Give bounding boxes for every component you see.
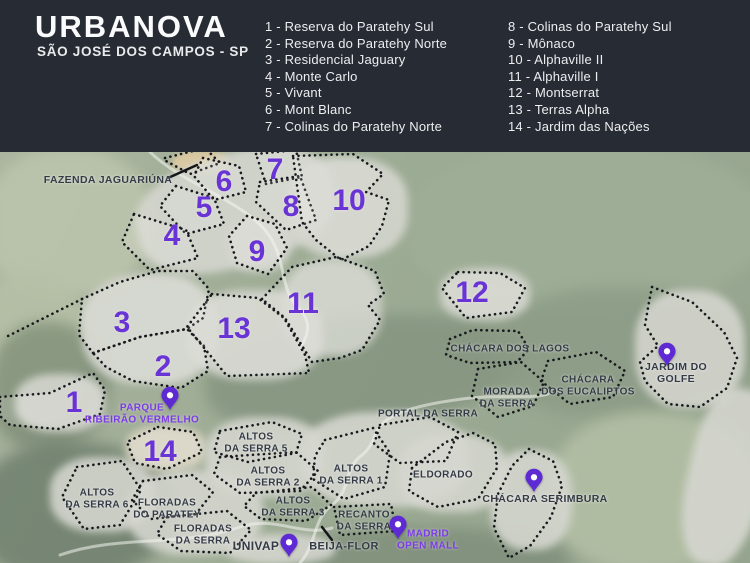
map-pin-icon [658, 343, 675, 366]
header: URBANOVA SÃO JOSÉ DOS CAMPOS - SP 1 - Re… [0, 0, 750, 152]
label-chacara-dos-eucaliptos: CHÁCARA DOS EUCALIPTOS [541, 375, 635, 398]
area-number-1: 1 [66, 386, 83, 420]
pin-chacara-serimbura [524, 468, 544, 497]
area-number-8: 8 [283, 190, 300, 224]
area-number-13: 13 [217, 312, 250, 346]
area-number-10: 10 [332, 184, 365, 218]
label-altos-da-serra-1: ALTOS DA SERRA 1 [319, 464, 382, 487]
page-subtitle: SÃO JOSÉ DOS CAMPOS - SP [37, 44, 249, 59]
legend-item: 4 - Monte Carlo [265, 69, 447, 86]
label-fazenda-jaguariuna: FAZENDA JAGUARIÚNA [44, 174, 172, 186]
area-number-11: 11 [287, 287, 319, 321]
area-number-14: 14 [143, 435, 176, 469]
area-number-12: 12 [455, 276, 488, 310]
legend-column-1: 1 - Reserva do Paratehy Sul2 - Reserva d… [265, 19, 447, 135]
label-beija-flor: BEIJA-FLOR [309, 541, 379, 554]
label-altos-da-serra-3: ALTOS DA SERRA 3 [261, 496, 324, 519]
map-pin-icon [525, 469, 542, 492]
legend-item: 14 - Jardim das Nações [508, 119, 672, 136]
area-number-9: 9 [249, 235, 266, 269]
area-number-5: 5 [196, 191, 213, 225]
pin-hole [167, 392, 173, 398]
map-pin-icon [280, 534, 297, 557]
pin-madrid-open-mall [388, 515, 408, 544]
legend-item: 7 - Colinas do Paratehy Norte [265, 119, 447, 136]
pin-hole [664, 348, 670, 354]
label-univap: UNIVAP [233, 540, 280, 554]
satellite-map: 1234567891011121314FAZENDA JAGUARIÚNACHÁ… [0, 152, 750, 563]
legend-item: 12 - Montserrat [508, 85, 672, 102]
legend-item: 6 - Mont Blanc [265, 102, 447, 119]
pin-jardim-do-golfe [657, 342, 677, 371]
area-number-4: 4 [164, 219, 181, 253]
map-pin-icon [389, 516, 406, 539]
legend-column-2: 8 - Colinas do Paratehy Sul9 - Mônaco10 … [508, 19, 672, 135]
label-morada-da-serra: MORADA DA SERRA [480, 387, 535, 410]
label-recanto-da-serra: RECANTO DA SERRA [337, 510, 392, 533]
page-title: URBANOVA [35, 9, 228, 45]
legend-item: 9 - Mônaco [508, 36, 672, 53]
map-pin-icon [161, 387, 178, 410]
pin-hole [286, 539, 292, 545]
legend-item: 2 - Reserva do Paratehy Norte [265, 36, 447, 53]
label-altos-da-serra-5: ALTOS DA SERRA 5 [224, 432, 287, 455]
label-parque-ribeirao-vermelho: PARQUE RIBEIRÃO VERMELHO [85, 403, 199, 426]
label-altos-da-serra-6: ALTOS DA SERRA 6 [65, 488, 128, 511]
legend-item: 11 - Alphaville I [508, 69, 672, 86]
area-number-6: 6 [216, 165, 233, 199]
marker-layer: 1234567891011121314FAZENDA JAGUARIÚNACHÁ… [0, 152, 750, 563]
label-altos-da-serra-2: ALTOS DA SERRA 2 [236, 466, 299, 489]
pin-hole [531, 474, 537, 480]
urbanova-infographic: 1234567891011121314FAZENDA JAGUARIÚNACHÁ… [0, 0, 750, 563]
pin-univap [279, 533, 299, 562]
legend-item: 5 - Vivant [265, 85, 447, 102]
area-number-7: 7 [267, 153, 284, 187]
area-number-3: 3 [114, 306, 131, 340]
area-number-2: 2 [155, 350, 172, 384]
label-portal-da-serra: PORTAL DA SERRA [378, 408, 478, 420]
pin-hole [395, 521, 401, 527]
pin-parque-ribeirao-vermelho [160, 386, 180, 415]
legend-item: 13 - Terras Alpha [508, 102, 672, 119]
legend-item: 10 - Alphaville II [508, 52, 672, 69]
label-chacara-serimbura: CHÁCARA SERIMBURA [482, 493, 607, 505]
legend-item: 1 - Reserva do Paratehy Sul [265, 19, 447, 36]
label-chacara-dos-lagos: CHÁCARA DOS LAGOS [451, 343, 570, 355]
legend-item: 3 - Residencial Jaguary [265, 52, 447, 69]
legend-item: 8 - Colinas do Paratehy Sul [508, 19, 672, 36]
label-eldorado: ELDORADO [413, 469, 473, 481]
label-floradas-do-paratey: FLORADAS DO PARATEY [133, 498, 201, 521]
label-floradas-da-serra: FLORADAS DA SERRA [174, 524, 232, 547]
